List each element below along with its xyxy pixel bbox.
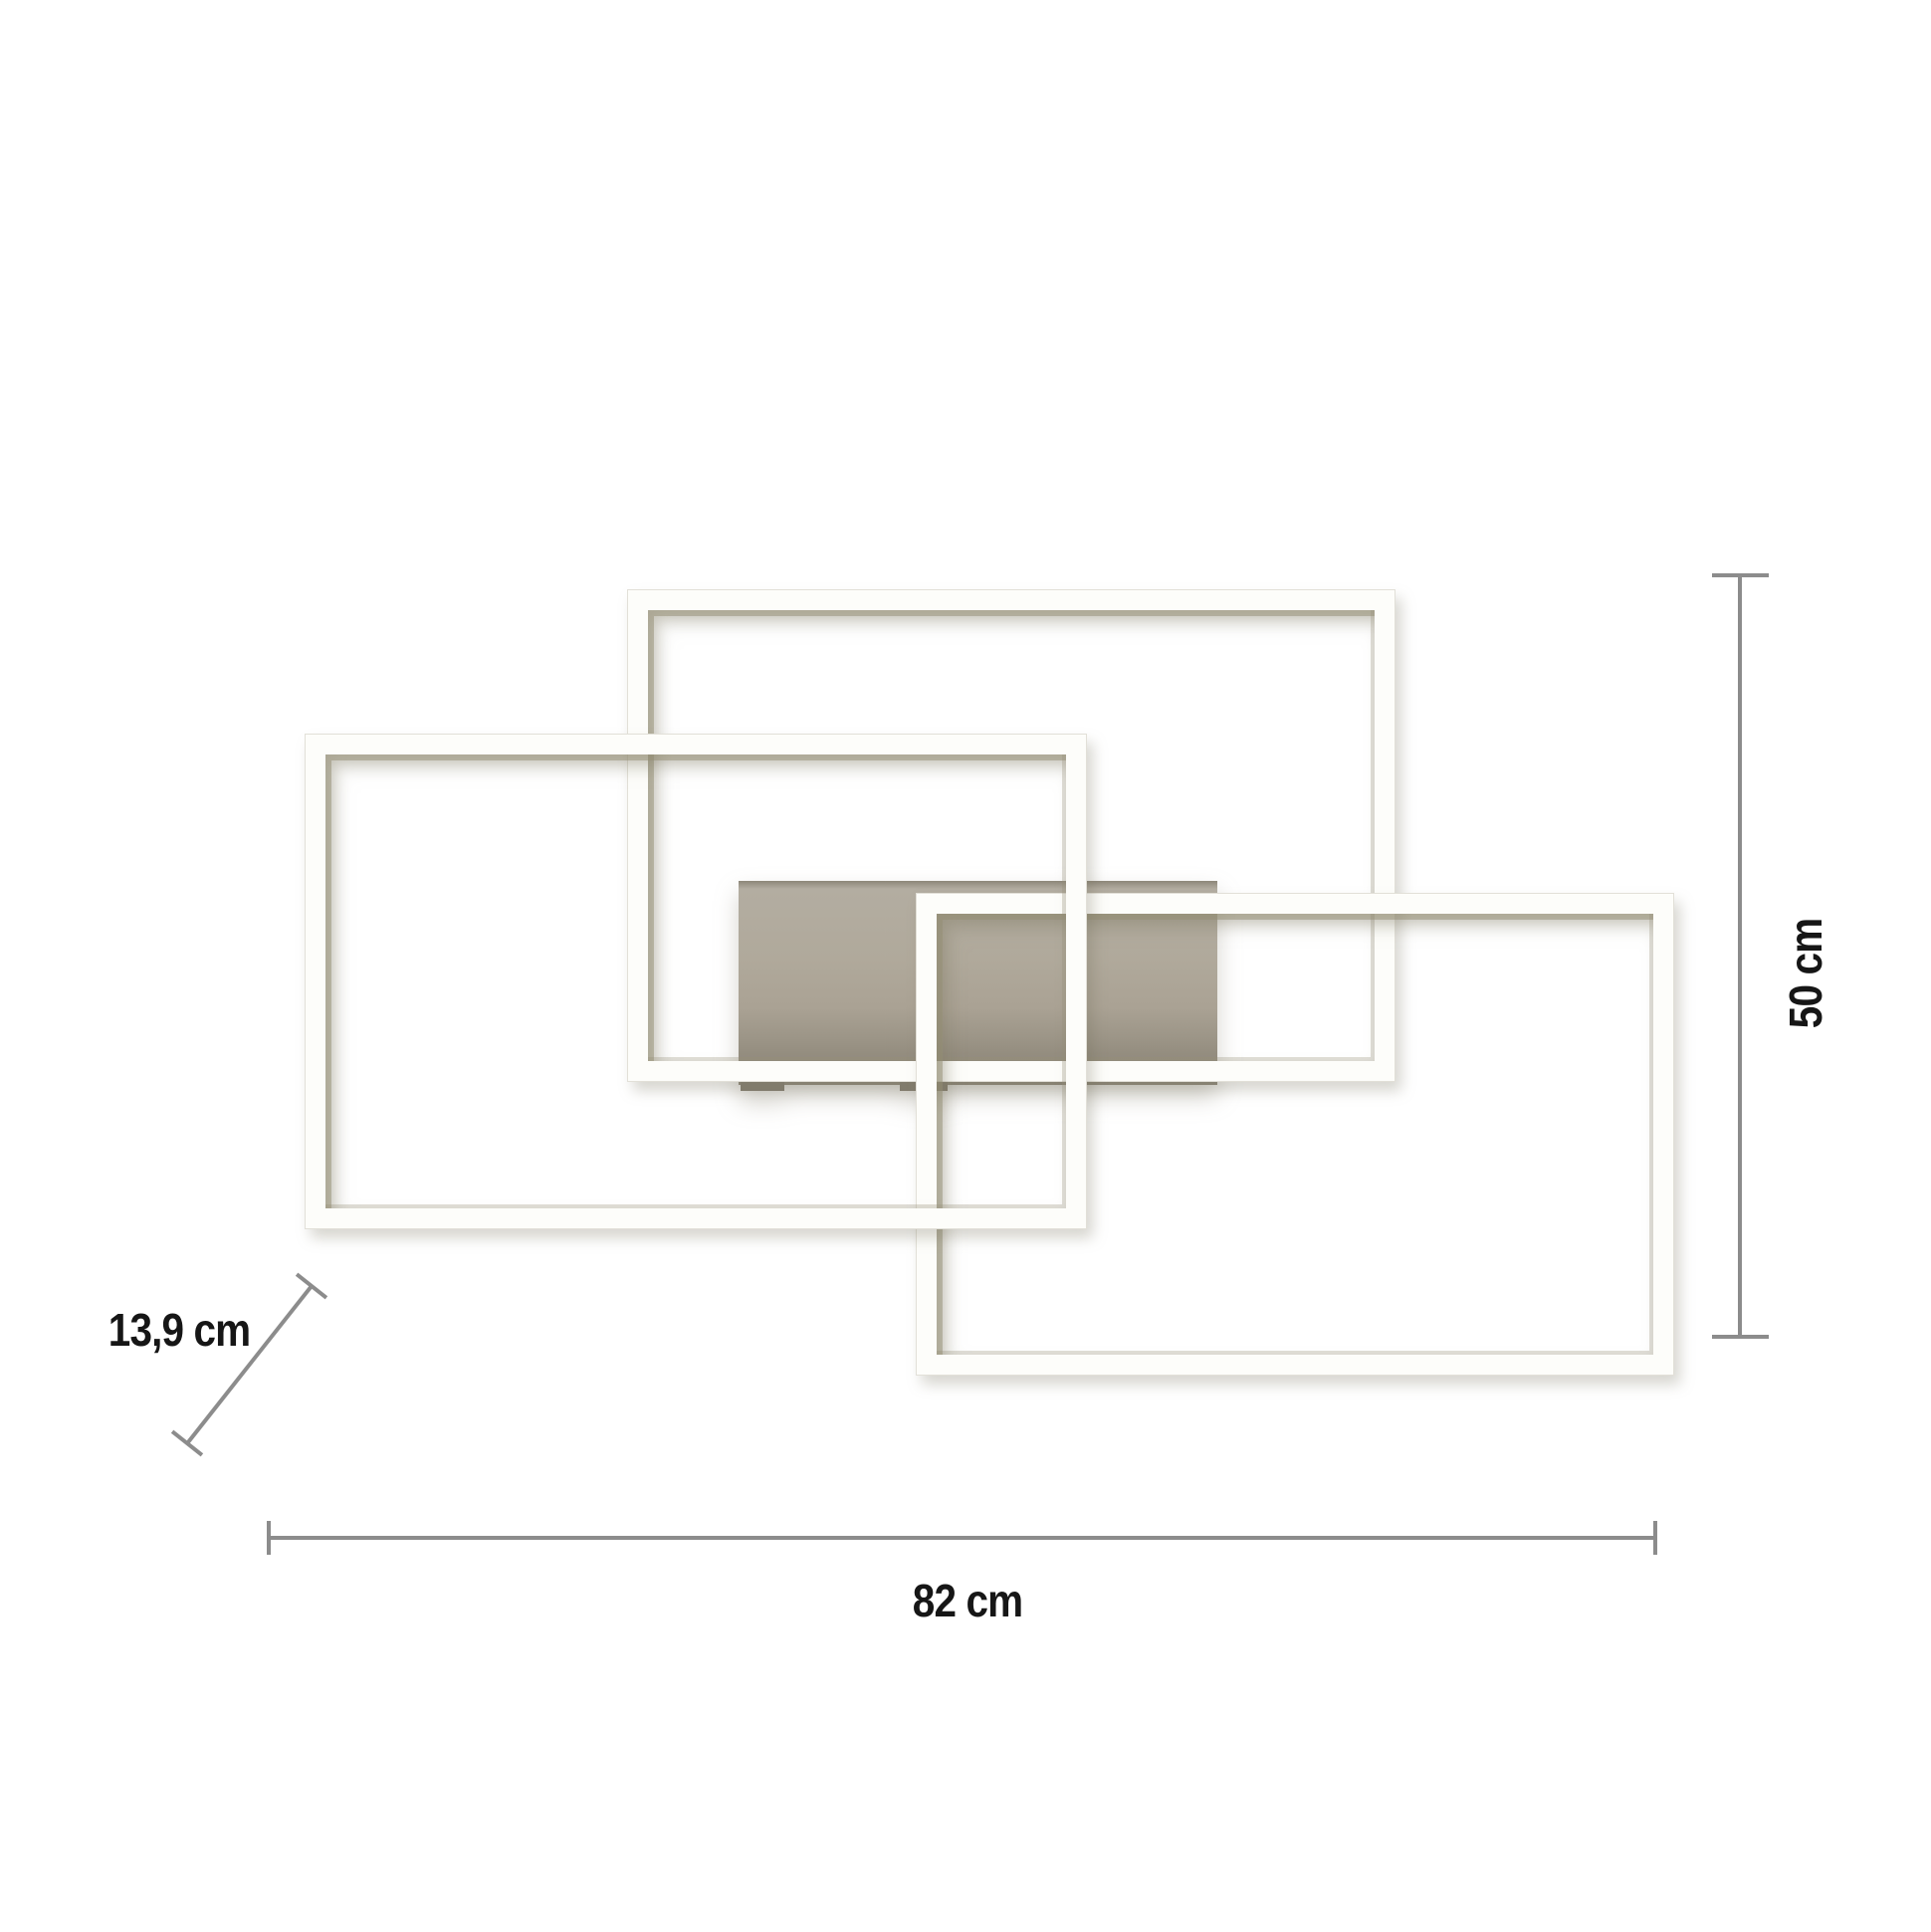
- height-dimension-tick: [1712, 573, 1769, 577]
- height-dimension-line: [1738, 575, 1742, 1337]
- height-dimension-label: 50 cm: [1783, 919, 1828, 1028]
- width-dimension-label: 82 cm: [913, 1578, 1022, 1623]
- width-dimension-tick: [1653, 1521, 1657, 1555]
- depth-dimension-label: 13,9 cm: [108, 1307, 250, 1353]
- depth-dimension-tick: [171, 1430, 203, 1457]
- led-frame-left: [305, 734, 1087, 1229]
- width-dimension-line: [269, 1536, 1655, 1540]
- width-dimension-tick: [267, 1521, 271, 1555]
- height-dimension-tick: [1712, 1335, 1769, 1339]
- dimension-diagram: 50 cm 82 cm 13,9 cm: [0, 0, 1931, 1932]
